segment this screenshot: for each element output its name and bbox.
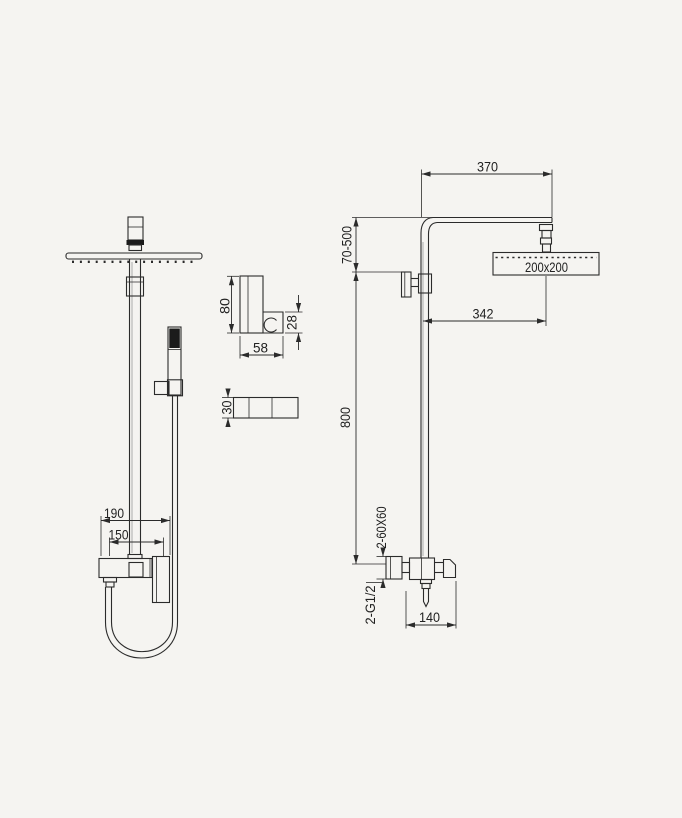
dim-80: 80 <box>217 276 240 333</box>
valve-handle-front <box>153 557 170 603</box>
dim-label-370: 370 <box>477 159 498 175</box>
dim-label-80: 80 <box>217 298 233 314</box>
riser-top-inlet <box>127 217 144 251</box>
dim-70-500: 70-500 <box>339 218 434 273</box>
hand-shower-head <box>170 329 180 348</box>
dim-label-800: 800 <box>337 407 353 428</box>
technical-drawing-page: 190 150 80 28 <box>0 0 682 818</box>
dim-140: 140 <box>406 581 456 629</box>
dim-370: 370 <box>422 159 553 218</box>
head-size-label: 200x200 <box>525 259 568 275</box>
hand-shower <box>168 327 181 395</box>
riser-pipe-side <box>421 233 429 558</box>
riser-pipe-front <box>130 259 141 555</box>
dim-58: 58 <box>240 336 283 359</box>
label-connections: 2-G1/2 <box>362 585 378 624</box>
shower-drawing-svg: 190 150 80 28 <box>0 0 682 818</box>
hose-fitting <box>104 578 117 583</box>
label-wall-plates: 2-60X60 <box>373 506 389 548</box>
head-connector-side <box>540 225 553 253</box>
mixer-valve-side <box>386 557 456 607</box>
valve-block-side <box>410 558 435 580</box>
valve-front-cap <box>129 563 143 578</box>
dim-label-150: 150 <box>109 527 129 543</box>
overhead-shower-front <box>66 253 202 262</box>
dim-label-58: 58 <box>253 340 268 356</box>
holder-clip-cutout <box>264 318 276 332</box>
dim-label-190: 190 <box>104 505 124 521</box>
dim-150: 150 <box>109 527 164 557</box>
shower-arm-side <box>421 218 552 235</box>
dim-2-g12: 2-G1/2 <box>362 583 382 625</box>
front-view: 190 150 <box>66 217 202 658</box>
wall-flange <box>386 557 402 580</box>
wall-bracket-side <box>402 272 432 297</box>
dim-label-28: 28 <box>284 315 300 330</box>
holder-detail-view: 80 28 58 <box>217 276 303 359</box>
dim-28: 28 <box>284 295 303 350</box>
valve-handle-side <box>444 560 456 578</box>
dim-label-30: 30 <box>219 400 235 414</box>
dim-30: 30 <box>219 389 235 427</box>
dim-2-60x60: 2-60X60 <box>373 506 389 586</box>
overhead-shower-side: 200x200 <box>493 253 599 276</box>
dim-label-140: 140 <box>419 609 440 625</box>
hand-shower-holder-front <box>155 380 183 396</box>
valve-outlet-spout <box>424 589 429 607</box>
dim-342: 342 <box>423 276 546 326</box>
side-view: 370 70-500 <box>337 159 599 629</box>
mixer-valve-front <box>99 555 170 603</box>
dim-label-342: 342 <box>473 306 494 322</box>
dim-label-70-500: 70-500 <box>339 226 355 264</box>
slider-detail-view: 30 <box>219 389 299 427</box>
